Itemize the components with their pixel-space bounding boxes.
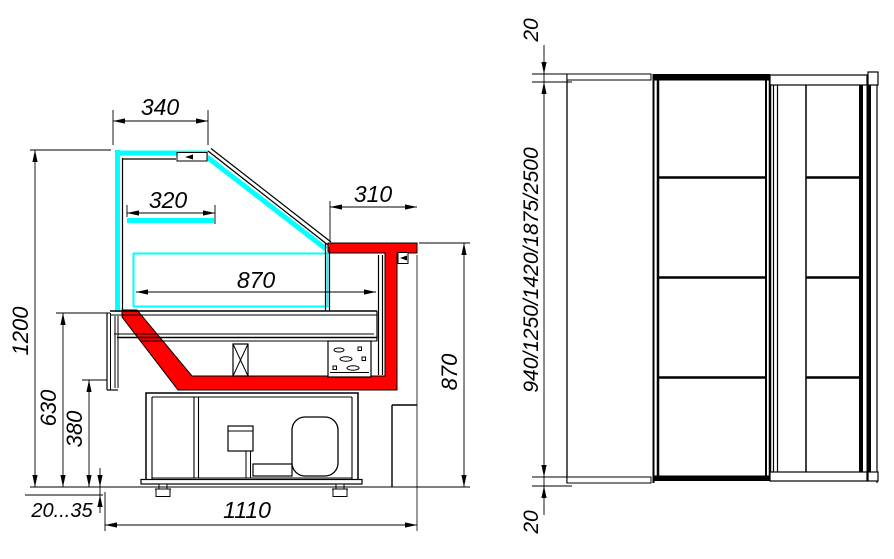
dim-320-label: 320 bbox=[149, 187, 188, 213]
dim-20-bottom-label: 20 bbox=[520, 510, 543, 535]
door-track-top-cap bbox=[868, 72, 878, 85]
machine-compartment bbox=[141, 393, 417, 497]
end-panel bbox=[567, 74, 651, 483]
dim-1110-label: 1110 bbox=[223, 497, 271, 523]
dim-310-label: 310 bbox=[354, 181, 393, 207]
dim-630-label: 630 bbox=[36, 389, 61, 426]
dim-870-depth: 870 bbox=[136, 267, 376, 295]
leveling-foot-right bbox=[332, 484, 348, 497]
refrigerated-basin-highlight bbox=[122, 243, 417, 390]
rear-door-section bbox=[770, 72, 878, 483]
front-bar-bracket bbox=[398, 253, 408, 264]
technical-drawing: 340 320 310 bbox=[0, 0, 894, 559]
compressor bbox=[292, 417, 338, 476]
dim-340-label: 340 bbox=[141, 94, 180, 120]
door-track-bottom bbox=[770, 472, 867, 481]
dim-310: 310 bbox=[330, 181, 417, 242]
dim-380-label: 380 bbox=[62, 410, 87, 447]
vented-bracket bbox=[328, 341, 371, 377]
rear-lower-wall bbox=[107, 313, 118, 390]
dim-340: 340 bbox=[113, 94, 208, 145]
glass-front-section bbox=[653, 74, 770, 483]
base-rail bbox=[141, 480, 362, 485]
dim-heights-label: 940/1250/1420/1875/2500 bbox=[520, 147, 543, 393]
base-tray bbox=[253, 464, 292, 476]
door-track-bottom-cap bbox=[868, 472, 878, 481]
dim-foot-range-label: 20...35 bbox=[30, 500, 93, 522]
glass-profile bbox=[115, 150, 328, 312]
leveling-foot-left bbox=[155, 484, 171, 497]
dim-870-depth-label: 870 bbox=[237, 267, 276, 293]
door-track-top bbox=[770, 75, 867, 85]
dim-1110: 1110 bbox=[105, 492, 417, 531]
dim-870-front-label: 870 bbox=[437, 353, 462, 390]
side-section-view: 340 320 310 bbox=[8, 94, 470, 531]
deck-support-brace bbox=[233, 344, 248, 376]
dim-630: 630 bbox=[36, 313, 110, 487]
dim-20-top-label: 20 bbox=[520, 18, 543, 43]
height-dimension-chain: 20 940/1250/1420/1875/2500 20 bbox=[520, 18, 572, 535]
drawing-canvas: 340 320 310 bbox=[0, 0, 894, 559]
dim-1200-label: 1200 bbox=[8, 306, 33, 356]
dim-870-front: 870 bbox=[419, 243, 470, 487]
dim-1200: 1200 bbox=[8, 150, 111, 487]
front-elevation-view: 20 940/1250/1420/1875/2500 20 bbox=[520, 18, 878, 535]
